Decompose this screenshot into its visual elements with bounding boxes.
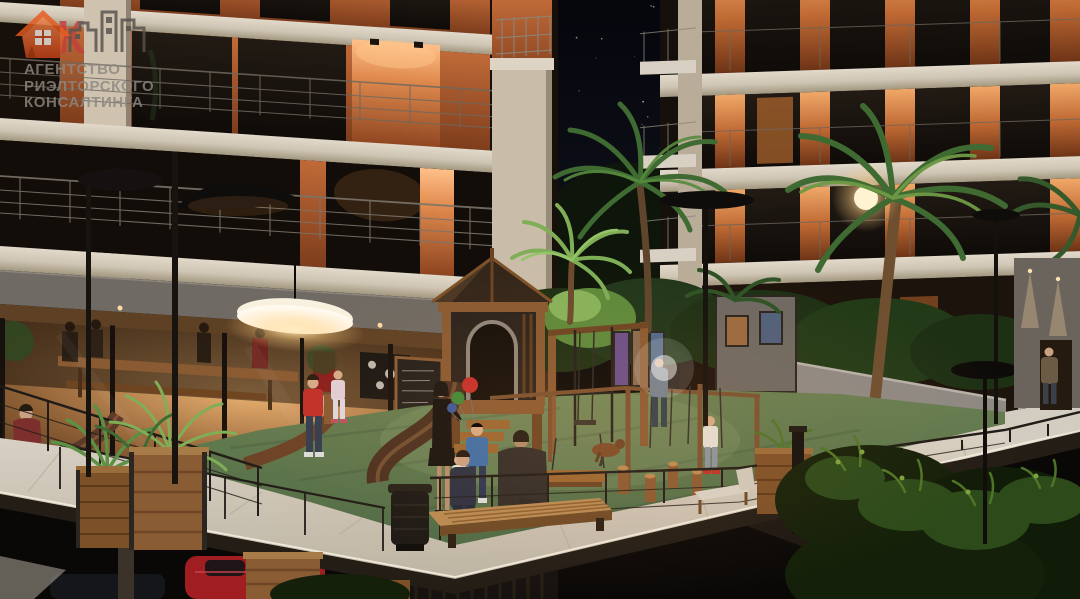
- planter-box: [76, 466, 138, 548]
- scene-canvas: [0, 0, 1080, 599]
- architectural-render: { "watermark": { "acronym_full": "АРК", …: [0, 0, 1080, 599]
- stair-alcove-right: [1014, 258, 1080, 410]
- car-dark: [50, 574, 165, 599]
- ambient-glow: [170, 260, 1030, 599]
